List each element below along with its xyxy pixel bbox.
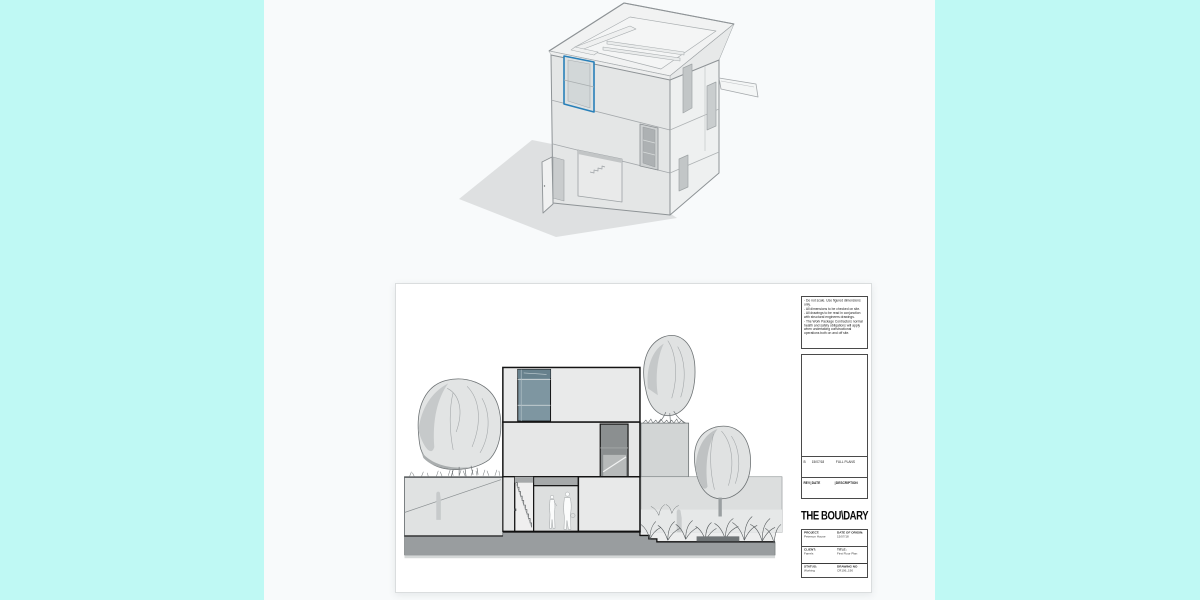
model-canopy [719,78,758,97]
revision-divider: B 15/07/18 FULL PLANS [802,456,867,477]
revision-header: REV | DATE | DESCRIPTION [802,478,867,488]
revision-header-description: DESCRIPTION [836,481,867,485]
client-value: Farrels [804,553,835,556]
drawing-no-label: DRAWING NO [837,565,868,569]
titleblock-notes: - Do not scale. Use figured dimensions o… [801,296,868,349]
axon-model[interactable] [542,3,758,215]
drawing-no-value: CR106_190 [837,569,868,572]
project-label: PROJECT: [804,531,835,535]
left-accent-panel [0,0,264,600]
drawing-sheet[interactable]: - Do not scale. Use figured dimensions o… [395,283,872,593]
rear-block [641,419,689,477]
selected-window-highlight[interactable] [564,56,594,112]
revision-row: B 15/07/18 FULL PLANS [802,457,867,467]
titleblock-table: PROJECT: Peterson House DATE OF ORIGIN: … [801,529,868,578]
revision-header-divider: REV | DATE | DESCRIPTION [802,477,867,498]
titleblock-row-status: STATUS: Working DRAWING NO CR106_190 [802,563,867,579]
title-value: First Floor Plan [837,553,868,556]
revision-description: FULL PLANS [836,460,867,464]
status-label: STATUS: [804,565,835,569]
model-mid-window [640,124,658,170]
project-value: Peterson House [804,535,835,538]
note-line: - All drawings to be read in conjunction… [804,312,865,320]
elevation-drawing [396,284,871,592]
date-of-origin-label: DATE OF ORIGIN: [837,531,868,535]
app-canvas: { "canvas": { "background": "#F8FAFB", "… [0,0,1200,600]
revision-date: 15/07/18 [812,460,835,464]
titleblock-row-client: CLIENT: Farrels TITLE: First Floor Plan [802,546,867,562]
model-entry-opening [578,150,622,202]
revision-header-rev: REV [802,481,810,485]
date-of-origin-value: 15/07/18 [837,535,868,538]
titleblock-revision-panel: B 15/07/18 FULL PLANS REV | DATE | DESCR… [801,354,868,499]
note-line: - Do not scale. Use figured dimensions o… [804,299,865,307]
note-line: - The Work Package Contractors normal he… [804,320,865,336]
tree-left [418,379,501,477]
right-accent-panel [935,0,1200,600]
revision-header-date: DATE [812,481,835,485]
note-line: - All dimensions to be checked on site. [804,307,865,311]
revision-rev: B [802,460,810,464]
status-value: Working [804,569,835,572]
company-logo: THE BOU\DARY [801,506,868,522]
titleblock-row-project: PROJECT: Peterson House DATE OF ORIGIN: … [802,530,867,546]
building-elevation [503,367,640,531]
3d-viewport[interactable] [440,0,810,270]
tree-rear-right [644,335,695,426]
left-wall [404,470,502,537]
